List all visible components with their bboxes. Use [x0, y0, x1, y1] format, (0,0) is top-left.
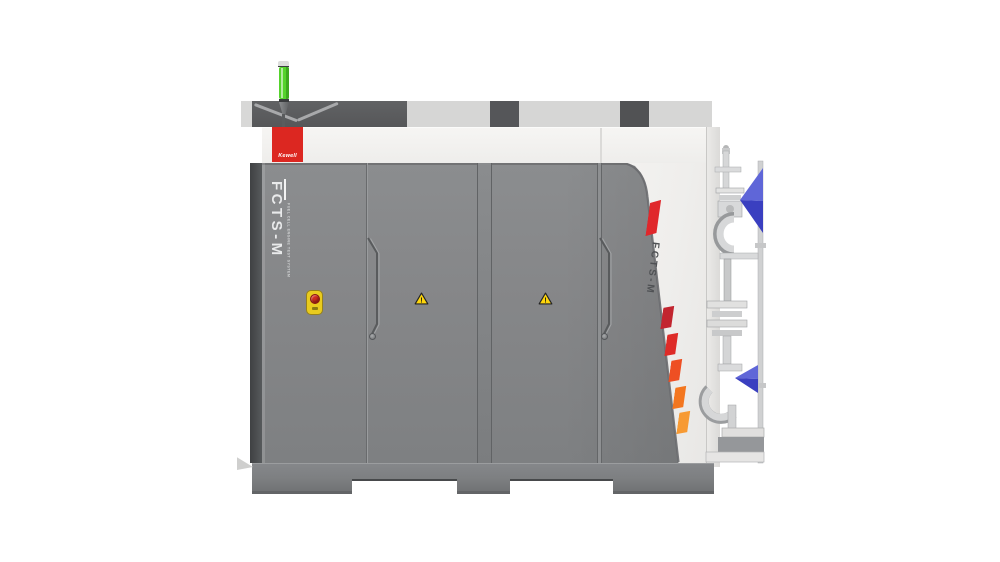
door-block: ! ! [262, 163, 679, 463]
door-lock-right [601, 333, 608, 340]
warning-glyph: ! [420, 297, 422, 304]
door-handle-left [366, 236, 382, 340]
beacon-shade [286, 67, 289, 99]
beacon-collar [279, 99, 289, 102]
door-handle-right [598, 236, 614, 340]
roof-segment-dark [620, 101, 649, 127]
roof-segment [241, 101, 252, 127]
door-seam-2 [477, 163, 492, 463]
forklift-notch [510, 479, 613, 495]
band-seam [600, 128, 602, 163]
status-beacon-light [279, 67, 289, 99]
warning-icon: ! [414, 292, 429, 305]
top-band [262, 127, 708, 165]
beacon-pole [282, 114, 285, 127]
brand-logo: Kewell [272, 127, 303, 162]
warning-glyph: ! [544, 297, 546, 304]
roof-segment-dark [490, 101, 519, 127]
front-model-text: FCTS-M [268, 181, 285, 305]
roof-perspective-line [297, 102, 339, 122]
door-lock-left [369, 333, 376, 340]
pipes-illustration [698, 143, 770, 473]
emergency-stop-slot [312, 307, 318, 310]
forklift-notch [352, 479, 457, 495]
roof-segment [649, 101, 712, 127]
roof-equipment-strip [241, 101, 712, 127]
roof-perspective-line [254, 103, 298, 122]
product-render-stage: Kewell ! [0, 0, 1000, 562]
cabinet-left-edge [250, 163, 262, 463]
warning-icon: ! [538, 292, 553, 305]
beacon-highlight [281, 68, 283, 98]
brand-logo-text: Kewell [278, 153, 297, 162]
emergency-stop-button [306, 290, 323, 315]
door-left-highlight [262, 163, 265, 463]
roof-segment [407, 101, 490, 127]
roof-segment-dark [252, 101, 407, 127]
emergency-stop-knob [310, 294, 320, 304]
roof-segment [519, 101, 620, 127]
front-tagline-text: FUEL CELL ENGINE TEST SYSTEM [287, 203, 291, 295]
base-plinth [252, 463, 714, 494]
